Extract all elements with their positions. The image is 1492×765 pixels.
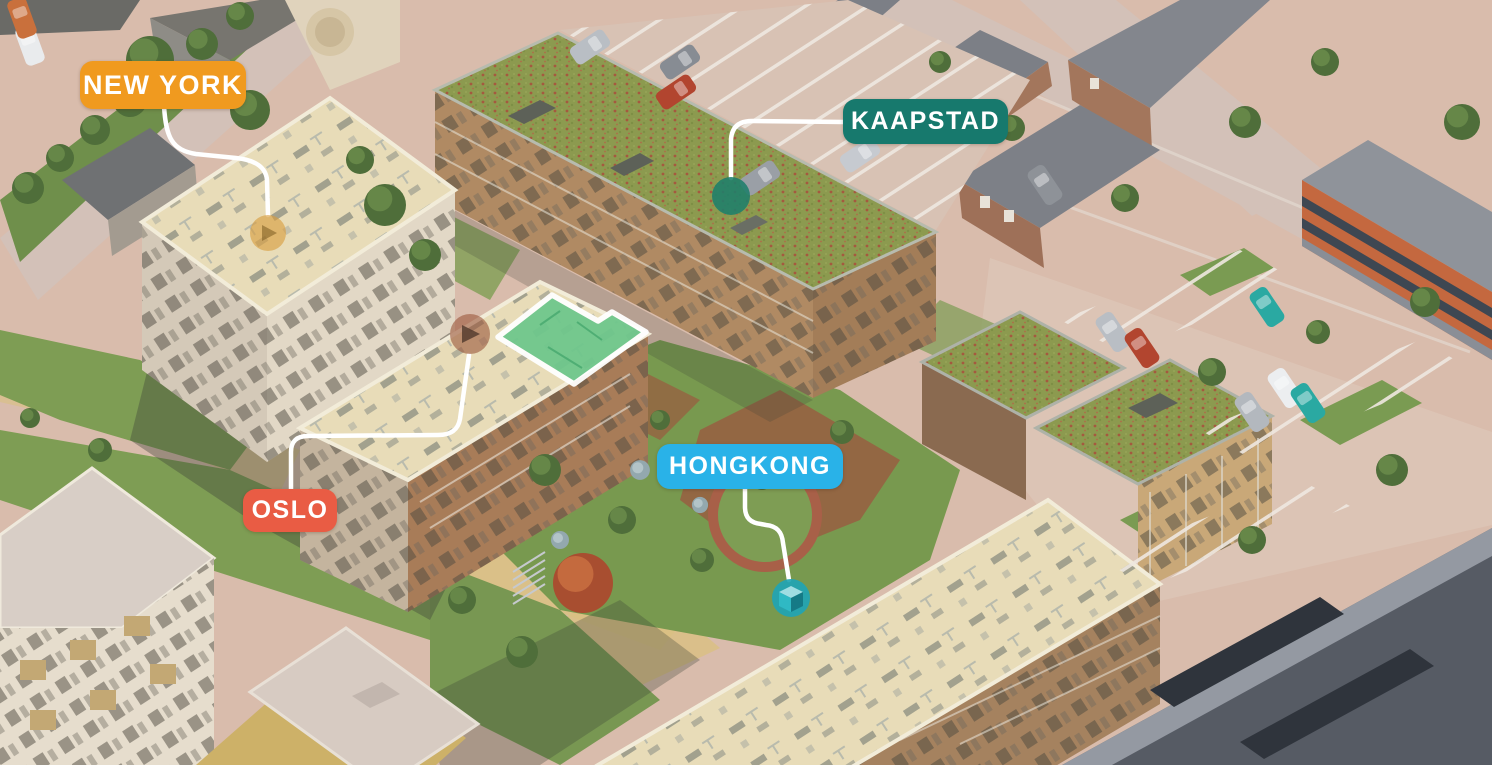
site-map: [0, 0, 1492, 765]
building-label-oslo[interactable]: OSLO: [243, 489, 337, 532]
marker-kaapstad[interactable]: [712, 177, 750, 215]
building-label-kaapstad[interactable]: KAAPSTAD: [843, 99, 1008, 144]
site-plan-view: NEW YORK KAAPSTAD OSLO HONGKONG: [0, 0, 1492, 765]
building-label-hongkong[interactable]: HONGKONG: [657, 444, 843, 489]
building-label-new-york[interactable]: NEW YORK: [80, 61, 246, 109]
marker-hongkong[interactable]: [772, 579, 810, 617]
